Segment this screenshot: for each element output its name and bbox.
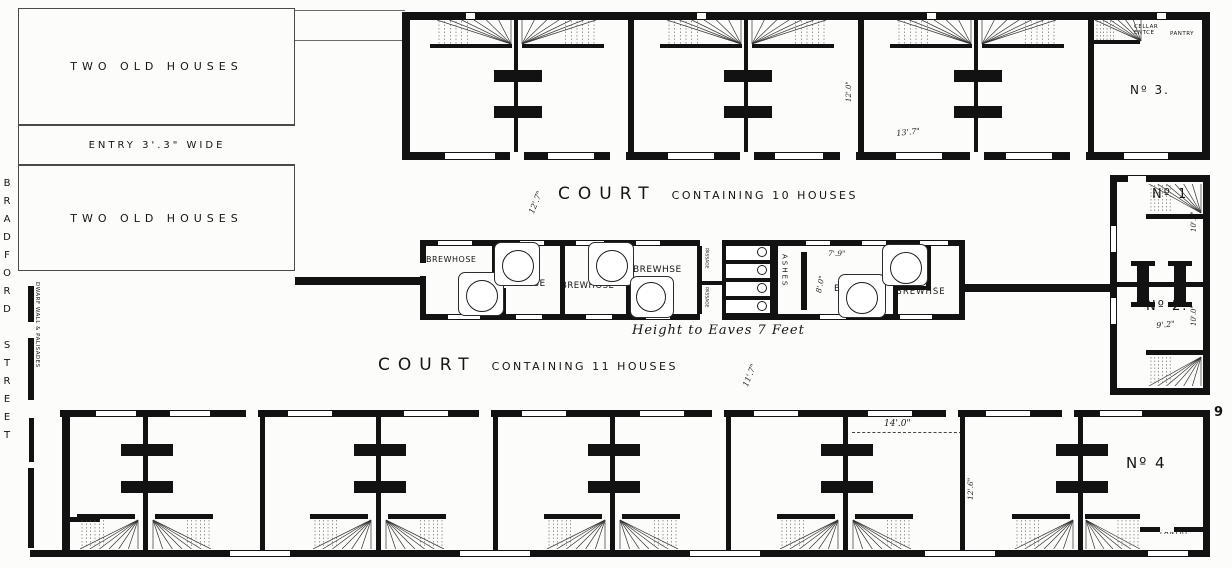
window-opening — [1148, 550, 1188, 557]
wall — [724, 106, 772, 118]
window-opening — [1100, 410, 1142, 417]
court-boundary-line — [295, 10, 405, 11]
window-opening — [868, 410, 912, 417]
wall — [974, 18, 978, 152]
window-opening — [900, 314, 932, 320]
dim-top-horizontal: 13'.7" — [896, 128, 920, 139]
copper-boiler-icon — [890, 252, 922, 284]
dim-brewhouse-height: 8'.0" — [815, 275, 826, 294]
window-opening — [668, 152, 714, 160]
wall — [1174, 261, 1186, 307]
court-boundary-line — [295, 40, 403, 41]
window-opening — [404, 410, 448, 417]
wall — [960, 417, 965, 550]
court-11-word: COURT — [378, 357, 477, 375]
stair-fan-icon — [521, 20, 597, 45]
court-11-label: COURT CONTAINING 11 HOUSES — [378, 357, 678, 375]
wall — [628, 18, 634, 154]
room-no3-label: Nº 3. — [1130, 84, 1170, 97]
dimension-line — [852, 432, 962, 433]
wall — [121, 481, 173, 493]
window-opening — [986, 410, 1030, 417]
court-10-label: COURT CONTAINING 10 HOUSES — [558, 186, 858, 204]
court-10-dim: 12'.7" — [528, 190, 545, 215]
door-opening — [479, 410, 491, 417]
edge-mark-label: 9 — [1214, 406, 1223, 420]
stair-fan-icon — [852, 519, 912, 549]
two-old-houses-lower-label: TWO OLD HOUSES — [70, 212, 242, 225]
stair-fan-icon — [779, 519, 839, 549]
dim-brewhouse-width: 7'.9" — [828, 250, 845, 258]
window-opening — [516, 314, 542, 320]
pantry-top-label: PANTRY — [1170, 32, 1194, 38]
door-opening — [927, 13, 936, 19]
stair-fan-icon — [1094, 20, 1142, 42]
stair-fan-icon — [1014, 519, 1074, 549]
wall — [1146, 350, 1203, 355]
wall — [60, 410, 1210, 417]
copper-boiler-icon — [757, 247, 767, 257]
window-opening — [96, 410, 136, 417]
two-old-houses-lower-box: TWO OLD HOUSES — [18, 165, 295, 271]
entry-strip: ENTRY 3'.3" WIDE — [18, 125, 295, 165]
door-opening — [1157, 13, 1166, 19]
wall — [959, 240, 965, 320]
wall — [28, 468, 34, 548]
passage-lower-label: PASSAGE — [703, 287, 708, 317]
door-opening — [700, 314, 722, 320]
wall — [1168, 261, 1192, 266]
entry-label: ENTRY 3'.3" WIDE — [89, 140, 226, 151]
window-opening — [690, 550, 760, 557]
wall — [1056, 481, 1108, 493]
window-opening — [754, 410, 798, 417]
wall — [1131, 302, 1155, 307]
door-opening — [246, 410, 258, 417]
door-opening — [970, 152, 984, 160]
two-old-houses-upper-box: TWO OLD HOUSES — [18, 8, 295, 125]
stair-fan-icon — [1148, 356, 1202, 386]
wall — [893, 286, 931, 290]
window-opening — [896, 152, 942, 160]
wall — [1203, 175, 1210, 395]
copper-boiler-icon — [757, 301, 767, 311]
stair-fan-icon — [546, 519, 606, 549]
window-opening — [548, 152, 594, 160]
wall — [1168, 302, 1192, 307]
wall — [726, 417, 731, 550]
stair-fan-icon — [312, 519, 372, 549]
door-opening — [1160, 527, 1174, 532]
wall — [588, 481, 640, 493]
window-opening — [636, 240, 660, 246]
court-10-rest: CONTAINING 10 HOUSES — [672, 190, 858, 202]
window-opening — [1006, 152, 1052, 160]
window-opening — [438, 240, 472, 246]
door-opening — [466, 13, 475, 19]
copper-boiler-icon — [757, 265, 767, 275]
two-old-houses-upper-label: TWO OLD HOUSES — [70, 60, 242, 73]
window-opening — [460, 550, 530, 557]
wall — [514, 18, 518, 152]
wall — [1146, 214, 1203, 219]
stair-fan-icon — [152, 519, 212, 549]
wall — [493, 417, 498, 550]
stair-fan-icon — [981, 20, 1057, 45]
window-opening — [288, 410, 332, 417]
copper-boiler-icon — [596, 250, 628, 282]
door-opening — [700, 240, 722, 246]
wall — [1110, 175, 1117, 395]
wall — [954, 106, 1002, 118]
window-opening — [170, 410, 210, 417]
wall — [893, 290, 898, 316]
wall — [28, 338, 34, 400]
wall — [1110, 388, 1210, 395]
window-opening — [925, 550, 995, 557]
wall — [724, 70, 772, 82]
wall — [801, 252, 807, 310]
window-opening — [862, 240, 886, 246]
wall — [1174, 527, 1203, 532]
stair-fan-icon — [666, 20, 742, 45]
copper-boiler-icon — [466, 280, 498, 312]
door-opening — [712, 410, 724, 417]
door-opening — [1128, 176, 1146, 182]
door-opening — [840, 152, 856, 160]
door-opening — [697, 13, 706, 19]
wall — [702, 281, 722, 285]
brewhouse-1-label: BREWHOSE — [426, 256, 476, 264]
wall — [821, 481, 873, 493]
wall — [121, 444, 173, 456]
window-opening — [586, 314, 612, 320]
window-opening — [1110, 298, 1117, 324]
wall — [1202, 12, 1210, 160]
wall — [1203, 410, 1210, 557]
door-opening — [510, 152, 524, 160]
window-opening — [640, 410, 684, 417]
wall — [965, 284, 1110, 292]
stair-fan-icon — [385, 519, 445, 549]
room-no4-label: Nº 4 — [1126, 456, 1167, 472]
dim-no2-width: 9'.2" — [1156, 320, 1175, 330]
window-opening — [445, 152, 495, 160]
court-11-rest: CONTAINING 11 HOUSES — [492, 361, 678, 373]
wall — [28, 286, 34, 322]
dim-bottom-width: 14'.0" — [884, 420, 911, 429]
eaves-note: Height to Eaves 7 Feet — [632, 324, 805, 338]
ashes-label: ASHES — [780, 254, 787, 312]
dim-no2-height: 10'.0" — [1191, 305, 1198, 326]
wall — [858, 18, 864, 154]
wall — [295, 277, 420, 285]
window-opening — [775, 152, 823, 160]
wall — [30, 550, 1210, 557]
window-opening — [1124, 152, 1168, 160]
court-11-dim: 11'.7" — [742, 363, 759, 388]
wall — [744, 18, 748, 152]
wall — [354, 444, 406, 456]
wall — [62, 417, 70, 550]
window-opening — [230, 550, 290, 557]
stair-fan-icon — [1085, 519, 1141, 549]
street-name-label: BRADFORD STREET — [1, 178, 12, 508]
copper-boiler-icon — [757, 283, 767, 293]
stair-fan-icon — [436, 20, 512, 45]
wall — [1137, 261, 1149, 307]
wall — [588, 444, 640, 456]
door-opening — [1070, 152, 1086, 160]
copper-boiler-icon — [846, 282, 878, 314]
door-opening — [740, 152, 754, 160]
window-opening — [1110, 226, 1117, 252]
door-opening — [610, 152, 626, 160]
stair-fan-icon — [1148, 184, 1202, 214]
wall — [402, 12, 410, 160]
window-opening — [522, 410, 566, 417]
copper-boiler-icon — [502, 250, 534, 282]
wall — [560, 246, 565, 316]
wall — [1131, 261, 1155, 266]
wall — [1117, 282, 1203, 287]
wall — [494, 70, 542, 82]
dim-top-vertical: 12'.0" — [846, 81, 853, 102]
floor-plan: TWO OLD HOUSES ENTRY 3'.3" WIDE TWO OLD … — [0, 0, 1232, 568]
door-opening — [420, 263, 426, 276]
door-opening — [1062, 410, 1074, 417]
copper-boiler-icon — [636, 282, 666, 312]
wall — [821, 444, 873, 456]
wall — [354, 481, 406, 493]
court-10-word: COURT — [558, 186, 657, 204]
wall — [1056, 444, 1108, 456]
stair-fan-icon — [751, 20, 827, 45]
wall — [420, 240, 426, 320]
door-opening — [946, 410, 958, 417]
wall — [954, 70, 1002, 82]
stair-fan-icon — [79, 519, 139, 549]
passage-upper-label: PASSAGE — [703, 248, 708, 280]
wall — [494, 106, 542, 118]
wall — [29, 418, 34, 462]
wall — [1140, 527, 1160, 532]
dim-bottom-vertical: 12'.6" — [967, 478, 975, 500]
stair-fan-icon — [896, 20, 972, 45]
wall — [1110, 175, 1210, 182]
wall — [260, 417, 265, 550]
brewhouse-4-label: BREWHSE — [633, 266, 682, 275]
window-opening — [806, 240, 830, 246]
stair-fan-icon — [619, 519, 679, 549]
